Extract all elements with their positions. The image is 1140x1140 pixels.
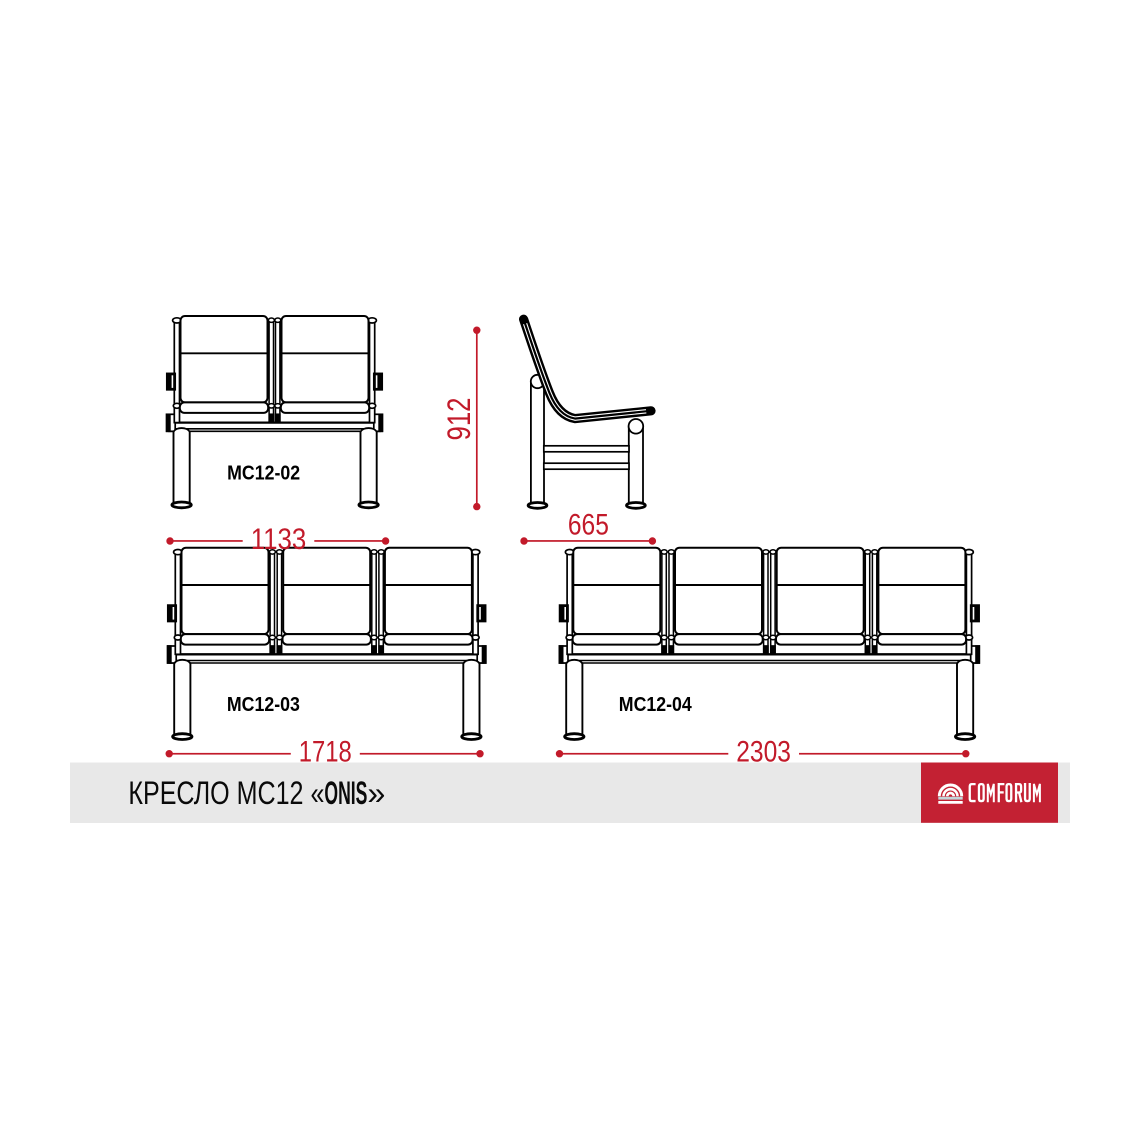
svg-text:665: 665 [568, 508, 609, 541]
svg-text:MC12-02: MC12-02 [227, 461, 300, 484]
svg-text:1133: 1133 [251, 523, 307, 556]
svg-text:КРЕСЛО МС12 «ONIS»: КРЕСЛО МС12 «ONIS» [128, 775, 385, 811]
svg-text:MC12-04: MC12-04 [619, 693, 693, 716]
svg-text:912: 912 [441, 398, 477, 441]
svg-text:MC12-03: MC12-03 [227, 693, 300, 716]
